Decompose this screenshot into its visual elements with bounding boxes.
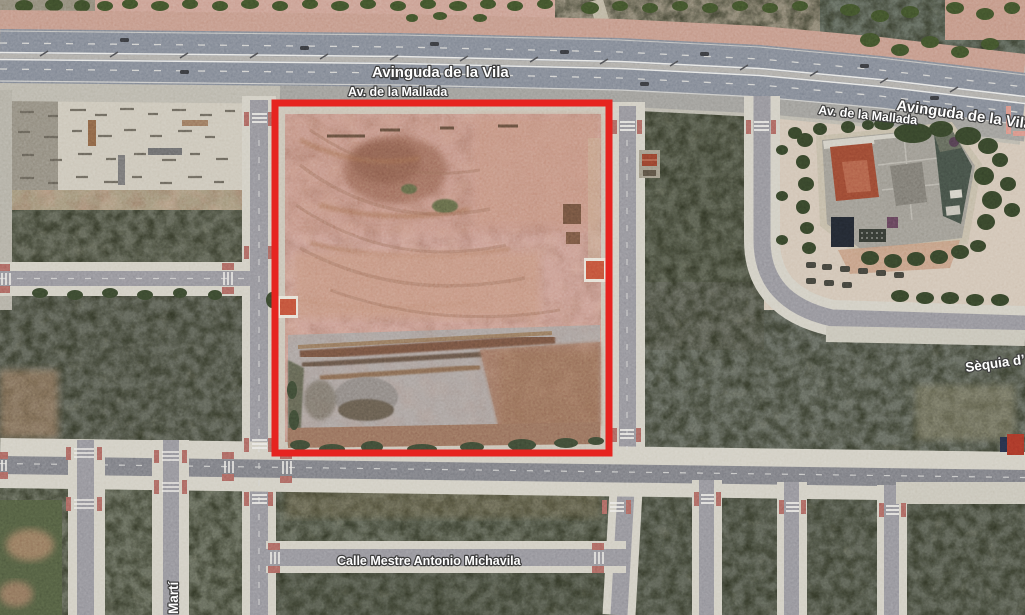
svg-text:Av. de la Mallada: Av. de la Mallada: [348, 85, 448, 99]
svg-text:Martí: Martí: [166, 580, 181, 614]
svg-text:Avinguda de la Vila: Avinguda de la Vila: [372, 64, 509, 81]
svg-text:Calle Mestre Antonio Michavila: Calle Mestre Antonio Michavila: [337, 554, 522, 568]
